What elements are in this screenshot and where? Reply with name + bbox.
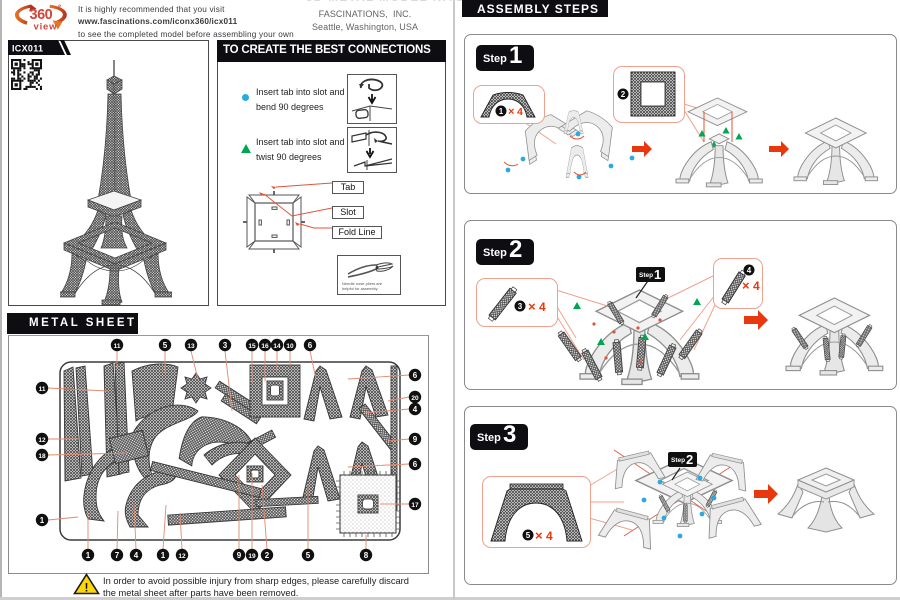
svg-text:4: 4 [753,279,760,293]
svg-text:10: 10 [286,343,294,350]
svg-text:6: 6 [413,460,418,469]
svg-text:3: 3 [518,302,523,311]
svg-text:6: 6 [308,341,313,350]
svg-text:8: 8 [364,551,369,560]
svg-text:×: × [508,106,514,118]
svg-text:13: 13 [187,343,195,350]
svg-text:4: 4 [747,266,752,275]
svg-text:16: 16 [261,343,269,350]
svg-text:4: 4 [134,551,139,560]
svg-text:×: × [528,299,536,314]
svg-text:9: 9 [413,435,418,444]
svg-text:view: view [34,22,58,33]
svg-text:4: 4 [413,405,418,414]
svg-text:18: 18 [38,453,46,460]
svg-text:3: 3 [223,341,228,350]
svg-text:×: × [535,528,543,543]
svg-text:1: 1 [86,551,91,560]
svg-text:4: 4 [517,106,523,118]
svg-text:!: ! [85,581,89,595]
svg-text:17: 17 [411,502,419,509]
svg-text:6: 6 [413,371,418,380]
svg-text:°: ° [58,4,61,13]
svg-text:5: 5 [306,551,311,560]
svg-text:5: 5 [163,341,168,350]
svg-text:2: 2 [265,551,270,560]
svg-text:12: 12 [38,437,46,444]
svg-text:ICX011: ICX011 [12,44,43,54]
svg-text:11: 11 [39,386,46,393]
svg-text:15: 15 [248,343,256,350]
svg-text:1: 1 [161,551,166,560]
svg-text:19: 19 [248,553,256,560]
svg-text:5: 5 [526,531,531,540]
svg-text:4: 4 [539,300,546,314]
svg-text:11: 11 [114,343,121,350]
svg-text:9: 9 [237,551,242,560]
svg-text:2: 2 [621,90,626,99]
svg-text:14: 14 [273,343,281,350]
svg-text:12: 12 [178,553,186,560]
svg-text:20: 20 [411,395,419,402]
svg-text:1: 1 [499,107,504,116]
svg-text:4: 4 [546,529,553,543]
svg-text:×: × [742,278,750,293]
svg-text:7: 7 [115,551,120,560]
svg-text:1: 1 [40,516,45,525]
